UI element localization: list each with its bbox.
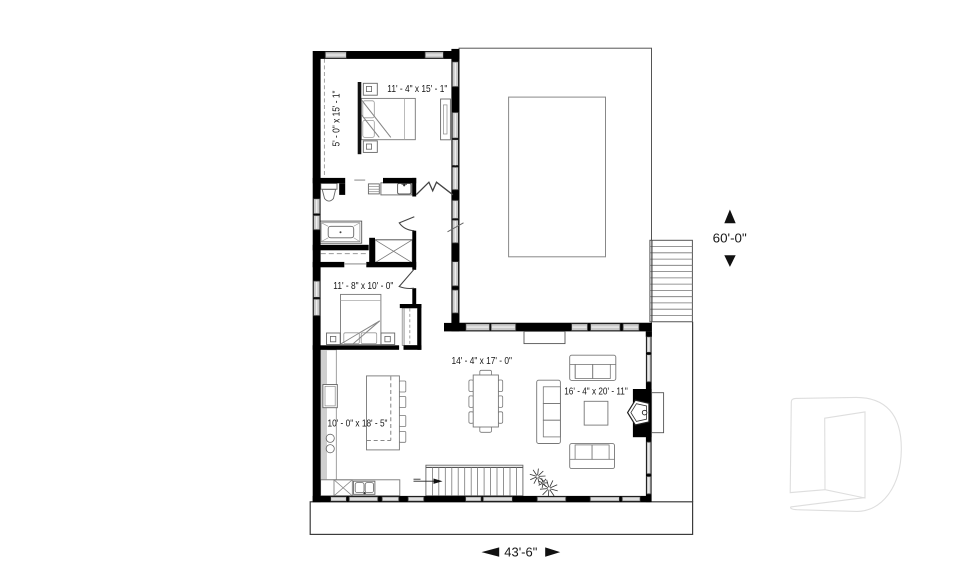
- svg-text:60'-0": 60'-0": [713, 232, 747, 246]
- svg-text:16' - 4" x 20' - 11": 16' - 4" x 20' - 11": [564, 386, 628, 397]
- svg-text:10' - 0" x 18' - 5": 10' - 0" x 18' - 5": [328, 419, 388, 430]
- svg-text:5' - 0" x 15' - 1": 5' - 0" x 15' - 1": [332, 90, 343, 146]
- svg-text:11' - 4" x 15' - 1": 11' - 4" x 15' - 1": [387, 84, 447, 95]
- svg-text:14' - 4" x 17' - 0": 14' - 4" x 17' - 0": [451, 356, 512, 367]
- svg-text:11' - 8" x 10' - 0": 11' - 8" x 10' - 0": [333, 281, 393, 292]
- svg-text:43'-6": 43'-6": [504, 546, 537, 560]
